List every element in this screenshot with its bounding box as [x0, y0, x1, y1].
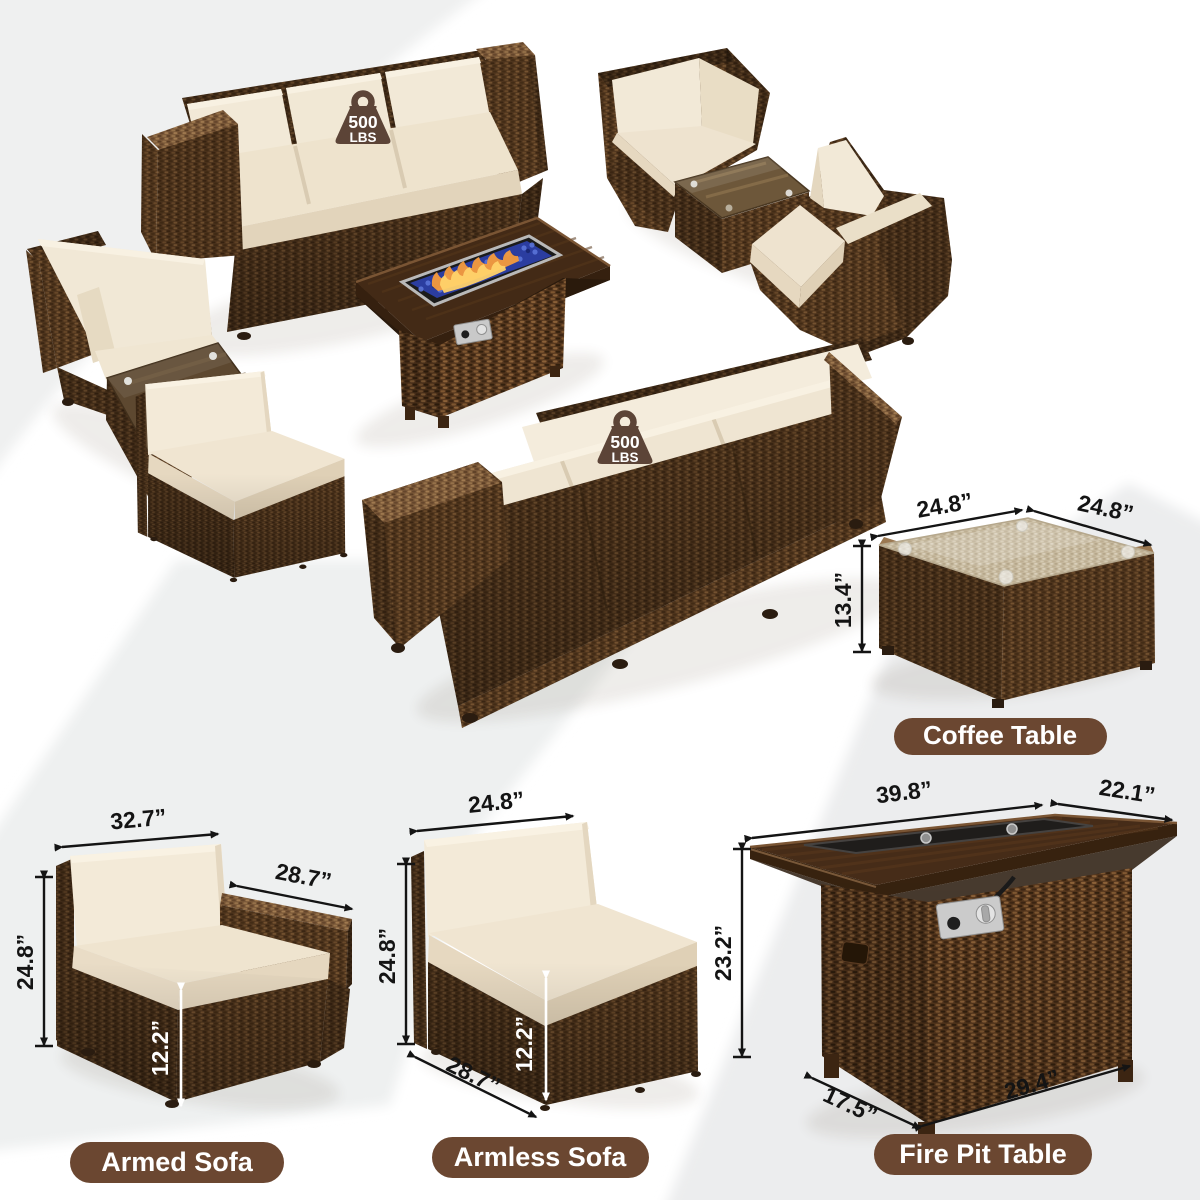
svg-text:Coffee Table: Coffee Table — [923, 720, 1077, 750]
svg-text:24.8”: 24.8” — [374, 928, 400, 984]
svg-text:24.8”: 24.8” — [12, 934, 38, 990]
svg-text:LBS: LBS — [612, 450, 639, 465]
svg-text:Armless Sofa: Armless Sofa — [454, 1142, 628, 1172]
svg-text:13.4”: 13.4” — [830, 572, 856, 628]
svg-text:Armed Sofa: Armed Sofa — [101, 1147, 254, 1177]
svg-text:12.2”: 12.2” — [147, 1020, 173, 1076]
svg-text:LBS: LBS — [350, 130, 377, 145]
svg-text:23.2”: 23.2” — [710, 925, 736, 981]
svg-text:Fire Pit Table: Fire Pit Table — [899, 1139, 1067, 1169]
svg-text:500: 500 — [610, 432, 639, 452]
svg-text:32.7”: 32.7” — [109, 804, 167, 835]
svg-text:12.2”: 12.2” — [511, 1016, 537, 1072]
svg-text:500: 500 — [348, 112, 377, 132]
